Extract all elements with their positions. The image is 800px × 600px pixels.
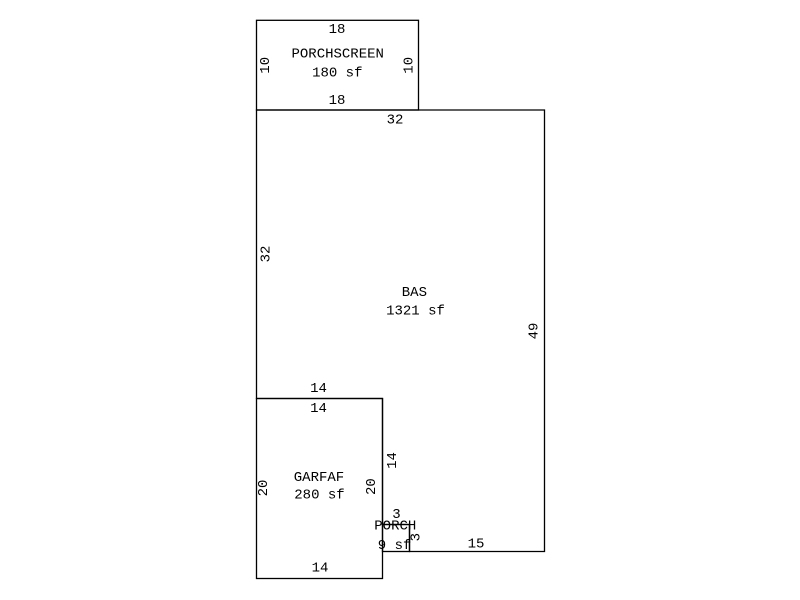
svg-text:PORCH: PORCH — [374, 519, 416, 535]
svg-text:20: 20 — [256, 480, 272, 497]
svg-text:14: 14 — [312, 561, 329, 577]
svg-text:PORCHSCREEN: PORCHSCREEN — [291, 47, 383, 63]
svg-text:49: 49 — [526, 323, 542, 340]
svg-text:32: 32 — [259, 246, 275, 263]
svg-text:14: 14 — [385, 452, 401, 469]
svg-text:GARFAF: GARFAF — [294, 470, 344, 486]
svg-text:15: 15 — [468, 537, 485, 553]
svg-text:BAS: BAS — [402, 285, 427, 301]
svg-text:10: 10 — [402, 57, 418, 74]
svg-text:14: 14 — [310, 381, 327, 397]
svg-text:18: 18 — [329, 22, 346, 38]
svg-text:1321 sf: 1321 sf — [386, 303, 445, 319]
svg-text:280 sf: 280 sf — [294, 488, 344, 504]
svg-text:14: 14 — [310, 401, 327, 417]
svg-text:20: 20 — [364, 478, 380, 495]
svg-text:10: 10 — [258, 57, 274, 74]
svg-text:180 sf: 180 sf — [312, 66, 362, 82]
svg-text:18: 18 — [329, 93, 346, 109]
svg-text:32: 32 — [387, 113, 404, 129]
svg-text:9 sf: 9 sf — [378, 538, 412, 554]
